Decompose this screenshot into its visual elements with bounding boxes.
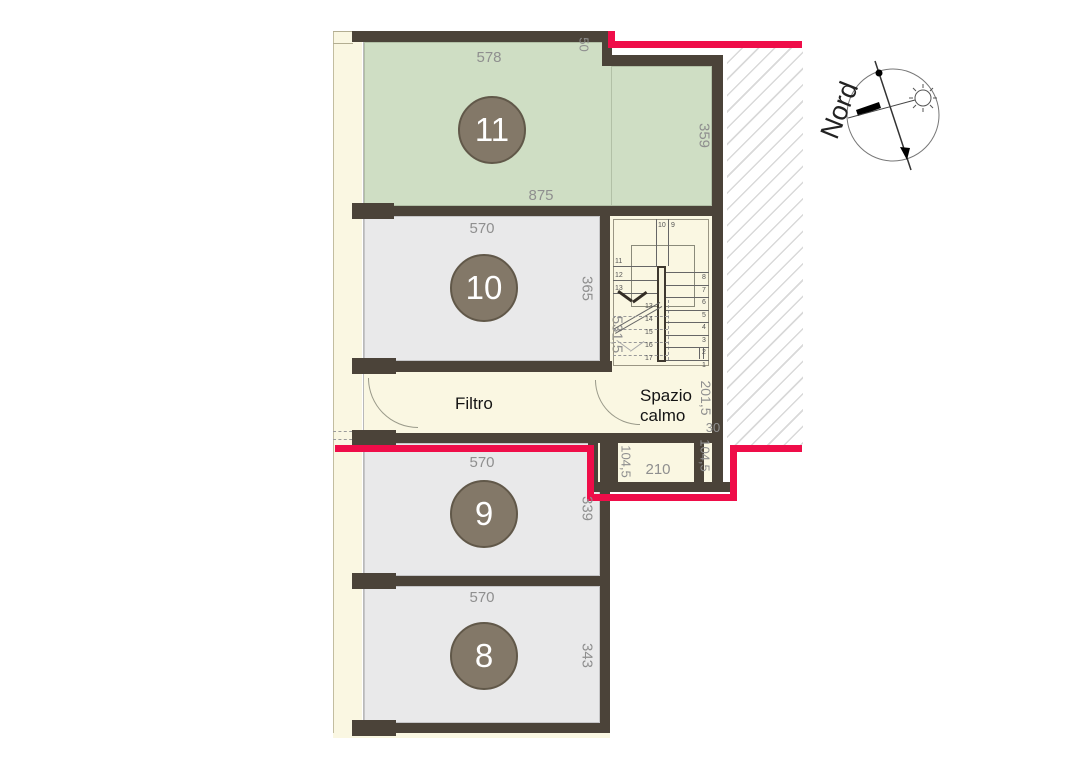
wall <box>352 723 610 733</box>
stair-step-number: 10 <box>658 222 666 229</box>
hatch-area <box>727 48 803 445</box>
stair-step-number: 13 <box>645 303 653 310</box>
stair-step-number: 6 <box>702 299 706 306</box>
dimension-label: 365 <box>580 269 595 309</box>
wall <box>602 55 723 66</box>
room-11-badge: 11 <box>458 96 526 164</box>
dimension-label: 570 <box>452 221 512 236</box>
escape-route-line <box>335 445 594 452</box>
room-9-badge: 9 <box>450 480 518 548</box>
stair-step-number: 17 <box>645 355 653 362</box>
wall <box>588 482 733 492</box>
stair-line <box>666 347 709 348</box>
dimension-label: 875 <box>511 188 571 203</box>
stair-step-number: 11 <box>615 258 622 265</box>
stair-step-number: 4 <box>702 324 706 331</box>
stair-step-number: 3 <box>702 337 706 344</box>
sun-icon <box>909 84 937 112</box>
safe-area-label-line2: calmo <box>640 406 692 426</box>
stair-line <box>666 322 709 323</box>
stair-line <box>666 297 709 298</box>
strip-line <box>333 43 353 44</box>
stair-step-number: 8 <box>702 274 706 281</box>
dimension-label: 210 <box>633 462 683 477</box>
dimension-label: 570 <box>452 455 512 470</box>
compass-north-dot <box>876 70 883 77</box>
safe-area-label-line1: Spazio <box>640 386 692 406</box>
stair-step-number: 14 <box>645 316 653 323</box>
dimension-label: 343 <box>580 636 595 676</box>
stair-line <box>666 272 709 273</box>
escape-route-line <box>608 41 802 48</box>
stair-line <box>613 355 668 356</box>
room-8-badge: 8 <box>450 622 518 690</box>
room-11-number: 11 <box>475 111 509 149</box>
stair-line <box>666 335 709 336</box>
floor-plan: 11 10 9 8 578 50 359 875 570 365 531,5 2… <box>0 0 1076 780</box>
stair-line <box>668 219 669 266</box>
strip-line <box>333 31 353 32</box>
wall <box>352 361 612 372</box>
room-10-number: 10 <box>466 269 503 307</box>
stair-step-number: 1 <box>702 362 706 369</box>
dimension-label: 339 <box>580 489 595 529</box>
wall <box>352 433 723 443</box>
stair-line <box>666 310 709 311</box>
stair-line <box>613 280 657 281</box>
stair-line <box>699 348 700 359</box>
room-9-number: 9 <box>475 495 493 533</box>
stair-step-number: 15 <box>645 329 653 336</box>
escape-route-line <box>730 445 737 501</box>
wall <box>352 206 723 216</box>
dimension-label: 104,5 <box>620 437 633 487</box>
dimension-label: 570 <box>452 590 512 605</box>
wall <box>352 576 610 586</box>
wall <box>608 443 618 482</box>
dimension-label: 578 <box>459 50 519 65</box>
stair-divider-wall <box>657 266 666 362</box>
stair-step-number: 7 <box>702 287 706 294</box>
corridor-label: Filtro <box>455 394 493 414</box>
dimension-label: 104,5 <box>699 431 712 481</box>
room-8-number: 8 <box>475 637 493 675</box>
dimension-label: 201,5 <box>699 373 713 423</box>
stair-line <box>613 316 668 317</box>
stair-line <box>666 285 709 286</box>
stair-line <box>666 360 709 361</box>
dimension-label: 359 <box>697 116 712 156</box>
stair-step-number: 12 <box>615 272 623 279</box>
stair-step-number: 2 <box>702 349 706 356</box>
room-10-badge: 10 <box>450 254 518 322</box>
dimension-label: 50 <box>578 34 591 56</box>
wall <box>352 31 612 42</box>
stair-line <box>656 219 657 266</box>
left-strip <box>333 31 362 738</box>
stair-line <box>613 266 657 267</box>
stair-line <box>613 329 668 330</box>
stair-step-number: 5 <box>702 312 706 319</box>
escape-route-line <box>730 445 802 452</box>
stair-step-number: 9 <box>671 222 675 229</box>
escape-route-line <box>587 494 737 501</box>
stair-step-number: 16 <box>645 342 653 349</box>
safe-area-label: Spazio calmo <box>640 386 692 425</box>
